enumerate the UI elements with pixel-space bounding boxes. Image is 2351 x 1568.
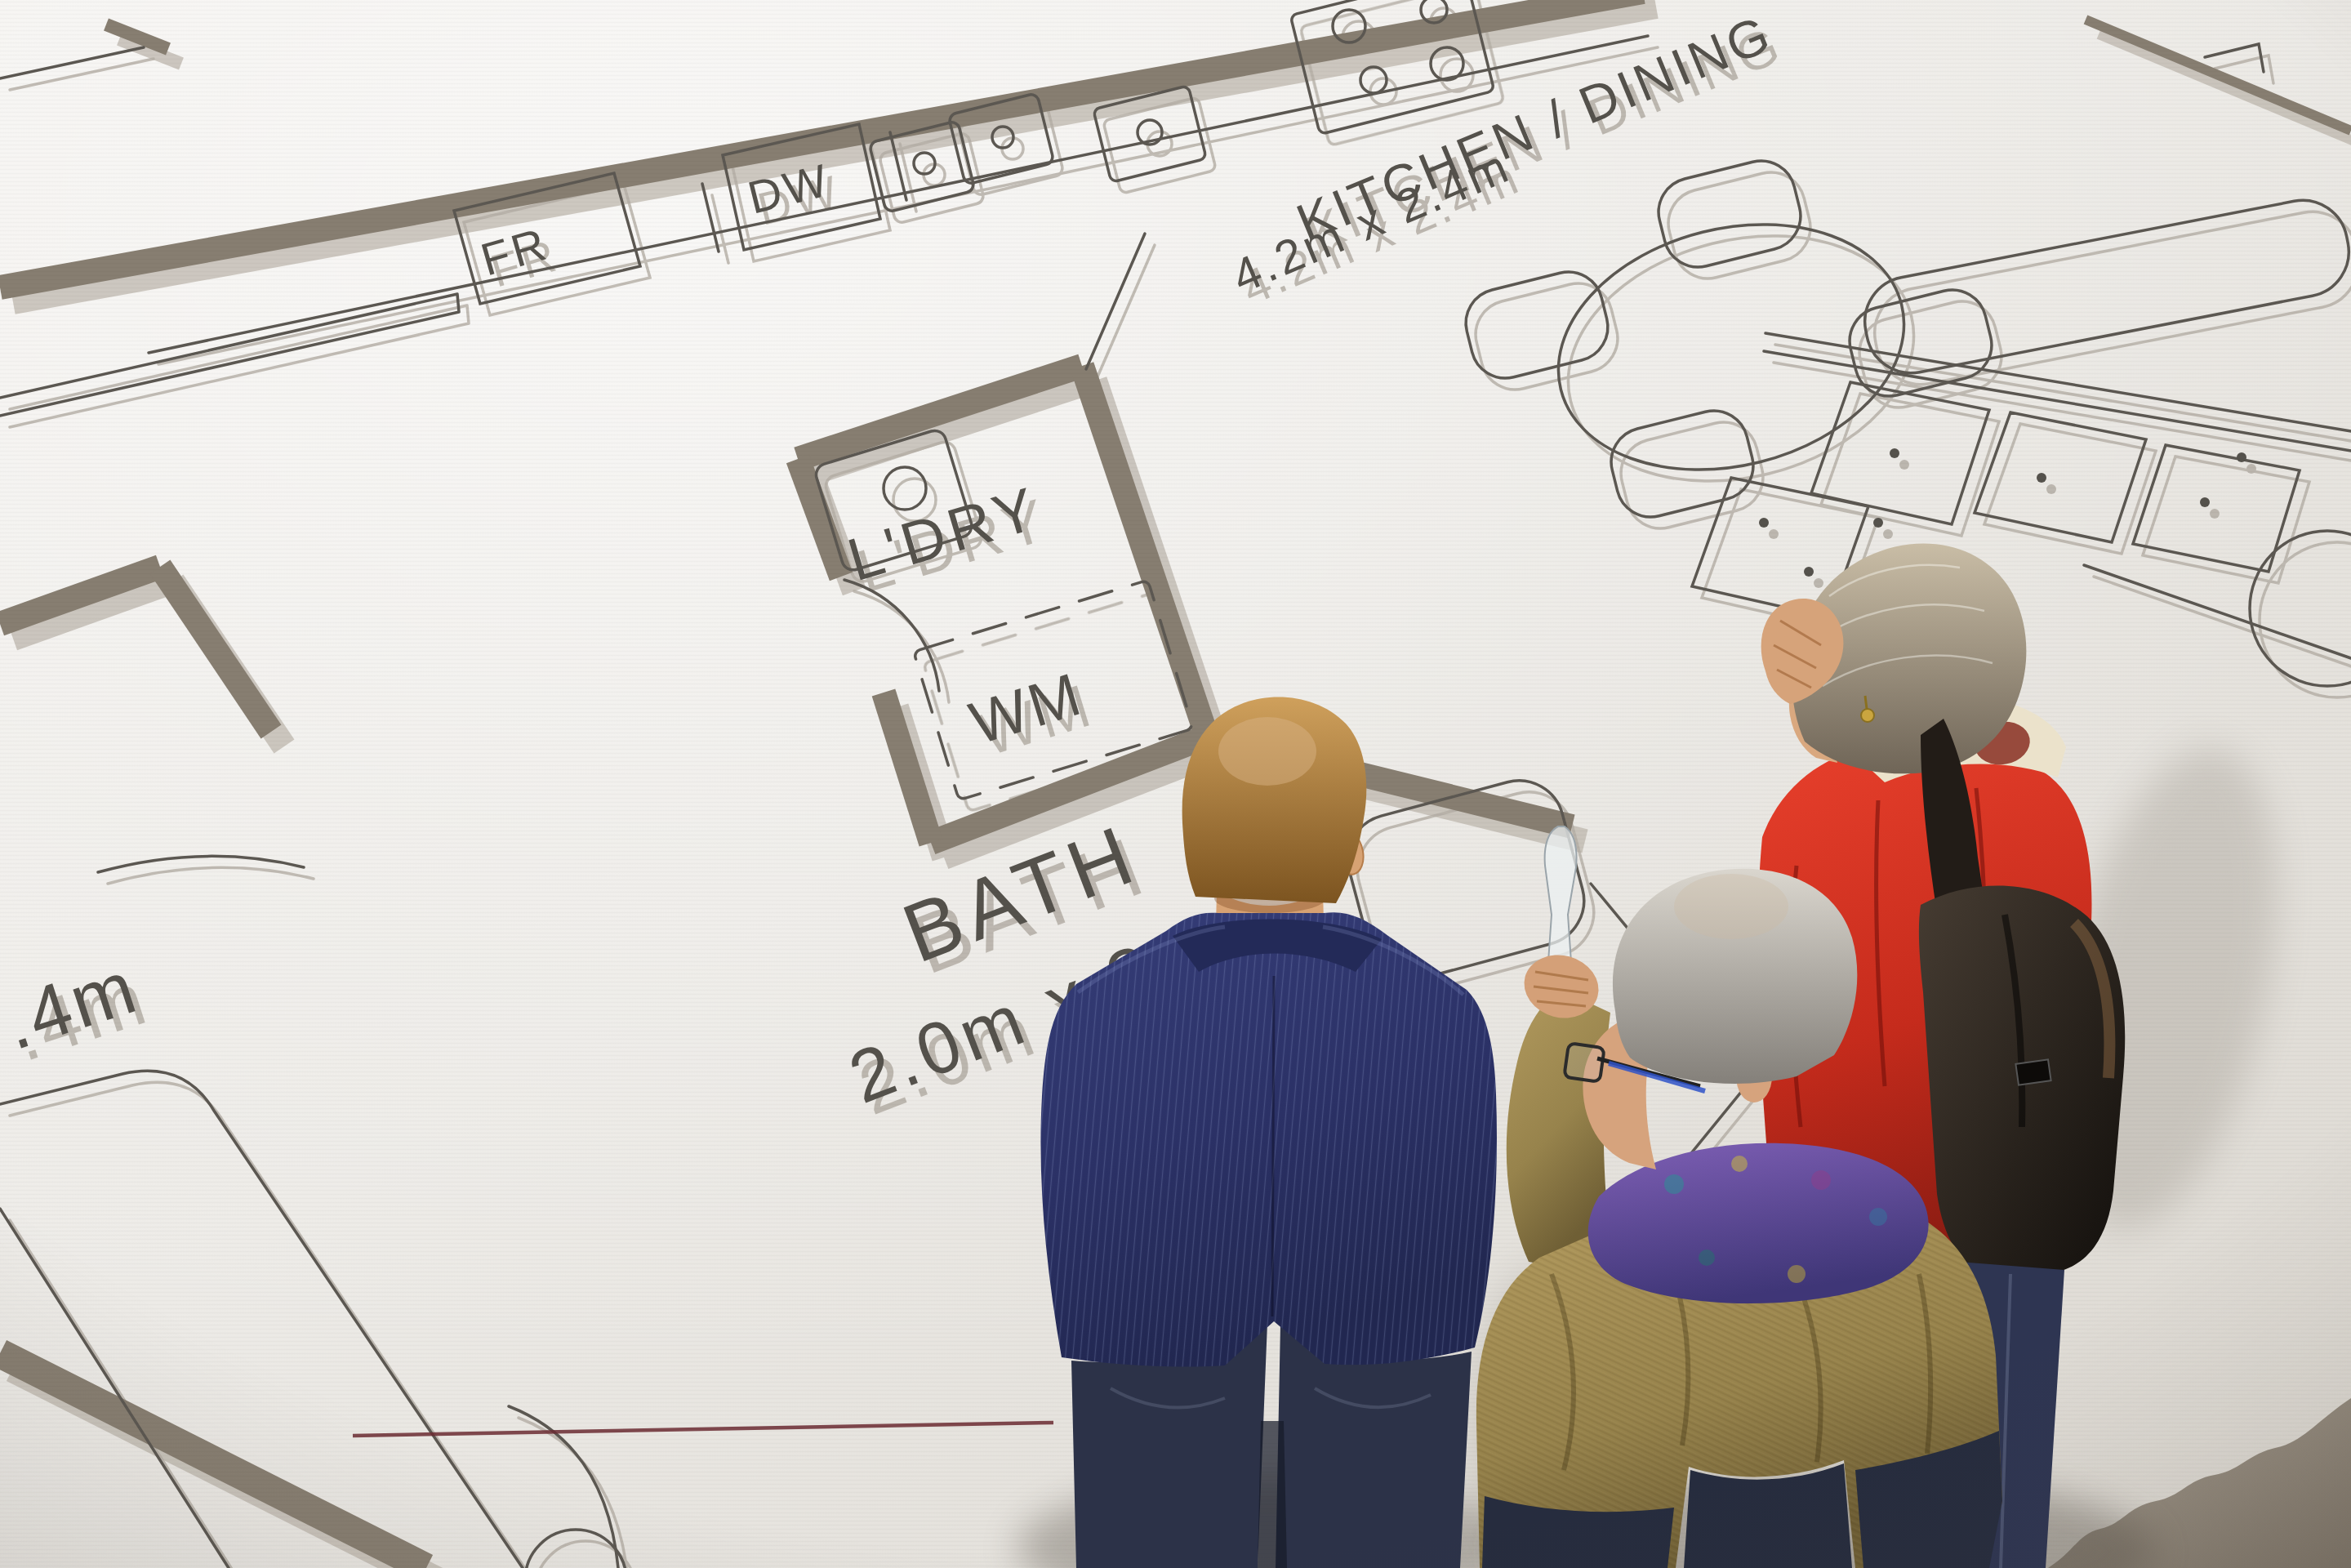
scene-canvas: KITCHEN / DINING 4.2m x 2.4m L'DRY WM DW… (0, 0, 2351, 1568)
photo-scene: KITCHEN / DINING 4.2m x 2.4m L'DRY WM DW… (0, 0, 2351, 1568)
vignette-overlay (0, 0, 2351, 1568)
